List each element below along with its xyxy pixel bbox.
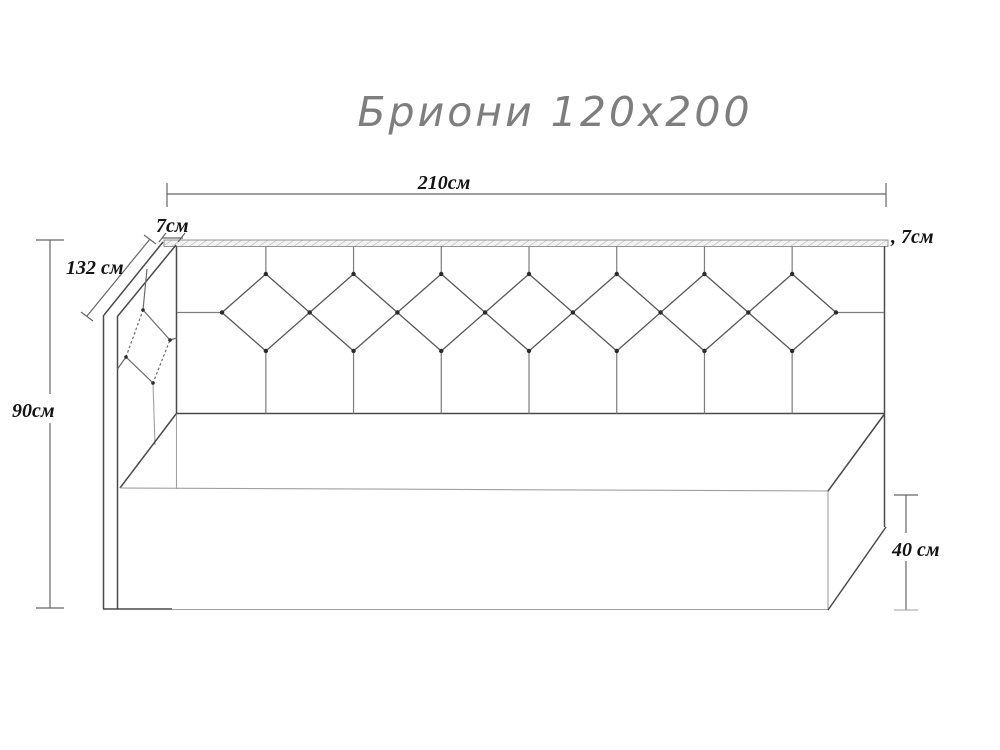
- dim-tick: [144, 235, 156, 244]
- dim-label-40: 40 см: [891, 539, 940, 561]
- tuft-button: [483, 310, 487, 314]
- dim-total-width: 210см: [167, 170, 886, 207]
- dim-label-7-right: , 7см: [890, 226, 934, 248]
- tuft-button: [615, 272, 619, 276]
- drawing-canvas: Бриони 120х200: [0, 0, 1000, 750]
- base-front-top-edge: [120, 488, 828, 491]
- tuft-button: [151, 381, 155, 385]
- tuft-button: [439, 272, 443, 276]
- dim-total-height: 90см: [8, 240, 66, 608]
- tuft-button: [124, 355, 128, 359]
- headboard-diamond-tufting: [177, 247, 884, 414]
- tuft-button: [395, 310, 399, 314]
- diamond-seams: [222, 274, 836, 351]
- tuft-button: [308, 310, 312, 314]
- side-diamond-edge-dotted-4: [153, 340, 170, 383]
- base-right-bottom-diagonal: [828, 527, 886, 610]
- tuft-button: [439, 349, 443, 353]
- side-panel-inner-top-edge: [117, 245, 176, 317]
- tuft-button: [571, 310, 575, 314]
- tuft-button: [351, 349, 355, 353]
- dimension-annotations: 210см 7см , 7см 132 см 90см: [8, 170, 950, 610]
- dim-label-132: 132 см: [66, 257, 124, 279]
- dim-base-height: 40 см: [888, 495, 950, 610]
- tuft-button: [351, 272, 355, 276]
- tuft-button: [746, 310, 750, 314]
- tuft-button: [834, 310, 838, 314]
- side-diamond-edge-3: [126, 357, 153, 383]
- tuft-button: [658, 310, 662, 314]
- tuft-button: [141, 308, 145, 312]
- dim-label-210: 210см: [417, 172, 471, 194]
- tuft-button: [527, 349, 531, 353]
- dim-top-board-left: 7см: [156, 215, 189, 242]
- side-diamond-top-stem: [143, 269, 147, 310]
- tuft-button: [790, 272, 794, 276]
- tuft-button: [264, 272, 268, 276]
- tuft-button: [527, 272, 531, 276]
- side-backrest-panel: [104, 242, 177, 609]
- tuft-button: [168, 338, 172, 342]
- tuft-button: [702, 272, 706, 276]
- side-diamond-bottom-stem: [153, 383, 155, 445]
- tuft-button: [615, 349, 619, 353]
- tuft-button: [264, 349, 268, 353]
- side-diamond-edge-2: [143, 310, 170, 340]
- base-right-top-diagonal: [828, 414, 885, 491]
- headboard: [164, 240, 888, 527]
- side-diamond-left-stem: [118, 357, 127, 369]
- side-diamond-edge-dotted-1: [126, 310, 143, 357]
- dim-side-depth: 132 см: [66, 235, 156, 321]
- tuft-button: [220, 310, 224, 314]
- base-box: [103, 414, 886, 610]
- dim-label-90: 90см: [12, 400, 55, 422]
- dim-tick: [81, 312, 93, 321]
- page-title: Бриони 120х200: [357, 88, 752, 136]
- diamond-stems: [177, 247, 884, 414]
- furniture-diagram: Бриони 120х200: [0, 0, 1000, 750]
- seat-left-corner-diagonal: [120, 414, 176, 488]
- headboard-top-board: [164, 240, 888, 247]
- tuft-button: [790, 349, 794, 353]
- tuft-button: [702, 349, 706, 353]
